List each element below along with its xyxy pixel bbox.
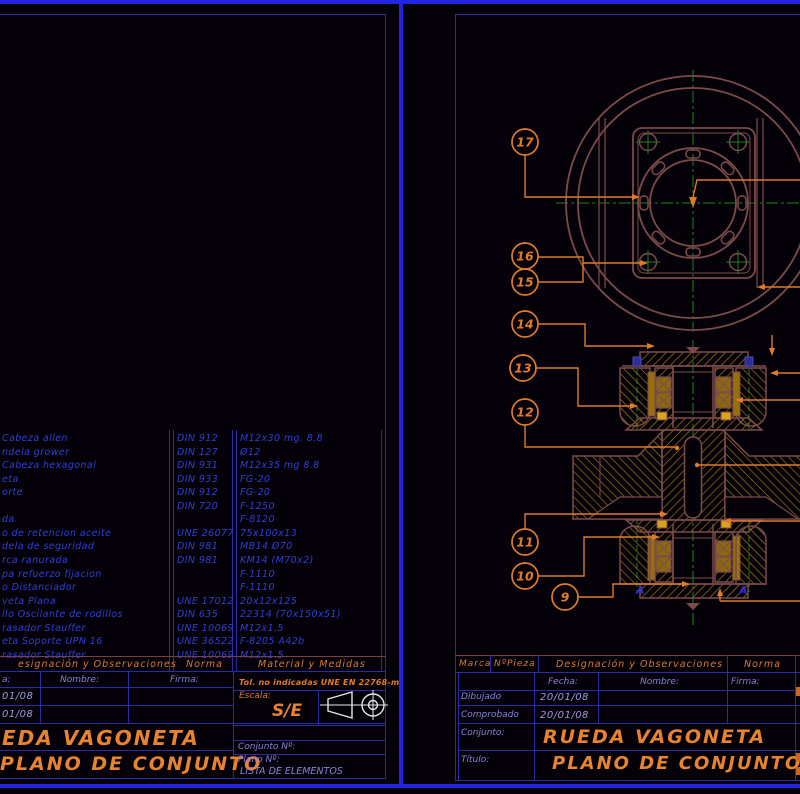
balloon-number-16: 16 <box>516 249 534 264</box>
balloon-number-17: 17 <box>516 135 534 150</box>
balloon-number-13: 13 <box>514 361 531 376</box>
assembly-drawing: A A <box>0 0 800 794</box>
hub-slot-hole <box>651 161 667 177</box>
cad-canvas: Cabeza allenDIN 912M12x30 mg. 8.8ndela g… <box>0 0 800 794</box>
balloon-number-11: 11 <box>516 535 533 550</box>
balloon-callouts: 17161514131211109 <box>510 129 578 610</box>
balloon-number-10: 10 <box>516 569 534 584</box>
section-marker-a-left: A <box>635 584 645 597</box>
projection-symbol-icon <box>320 690 388 720</box>
section-view <box>573 347 800 610</box>
section-marker-a-right: A <box>738 584 748 597</box>
balloon-number-14: 14 <box>516 317 533 332</box>
balloon-number-12: 12 <box>516 405 533 420</box>
hub-slot-hole <box>651 230 667 246</box>
balloon-number-15: 15 <box>516 275 534 290</box>
balloon-number-9: 9 <box>561 590 570 605</box>
hub-slot-hole <box>720 230 736 246</box>
hub-slot-hole <box>720 161 736 177</box>
